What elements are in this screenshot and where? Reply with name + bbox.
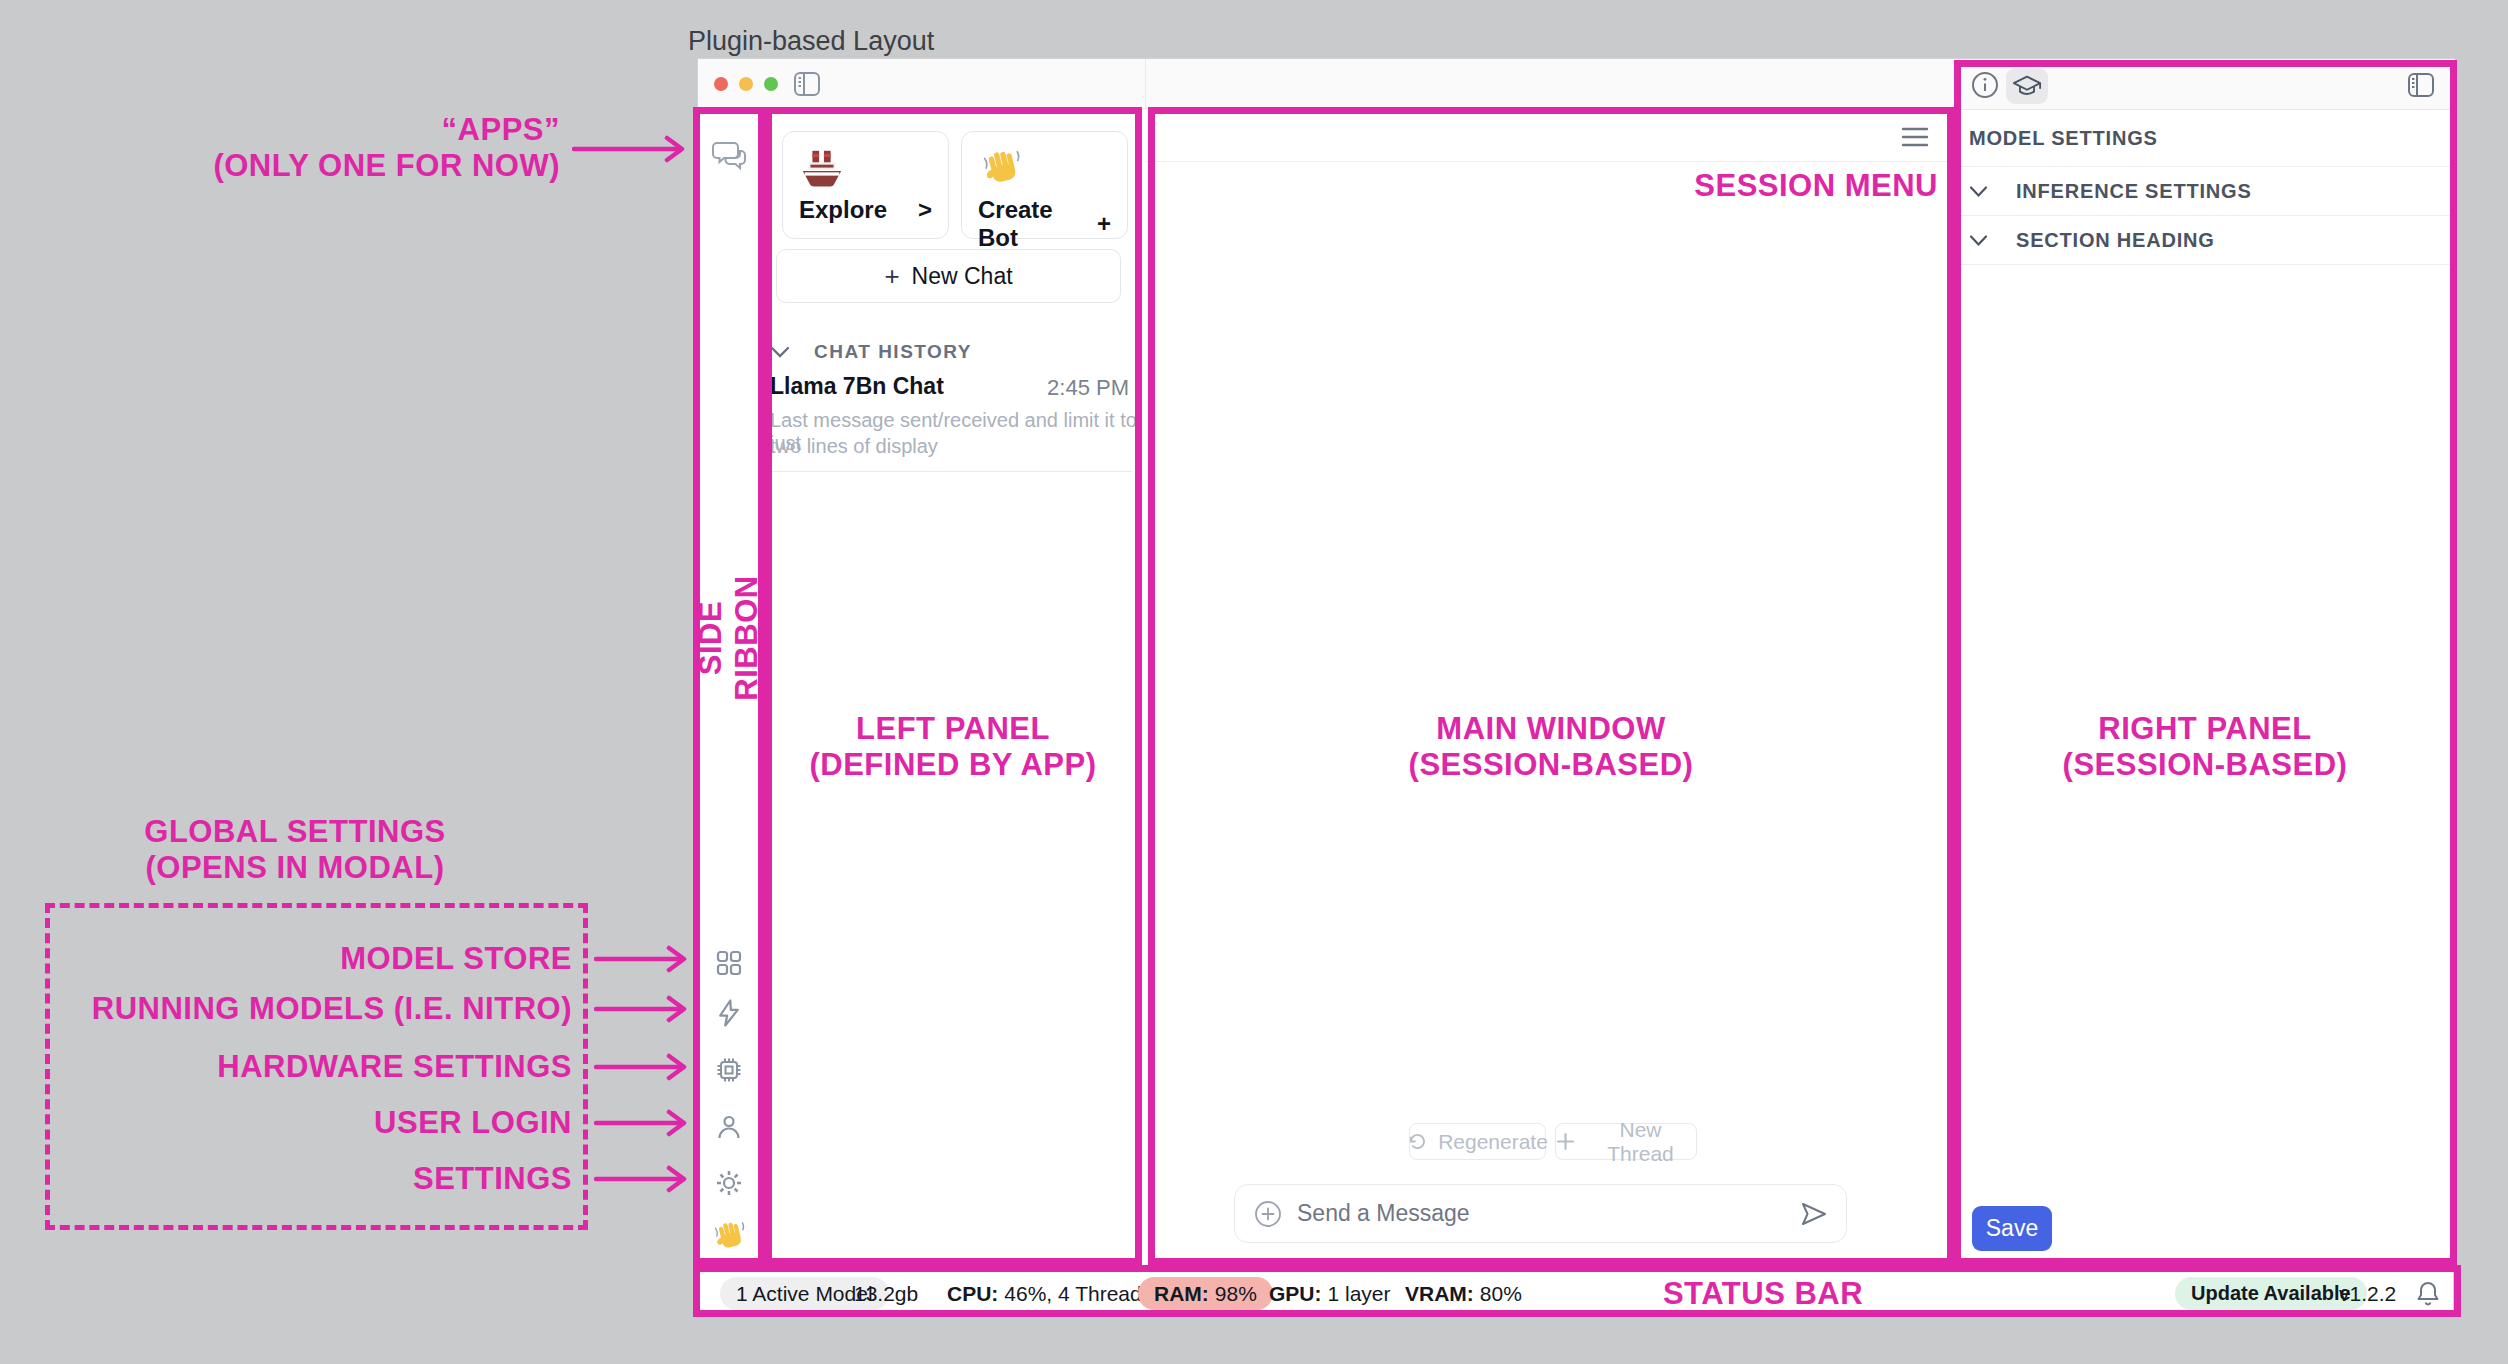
update-available-badge[interactable]: Update Available xyxy=(2175,1277,2367,1310)
regenerate-label: Regenerate xyxy=(1438,1130,1548,1154)
page-title: Plugin-based Layout xyxy=(688,26,934,57)
chevron-right-icon: > xyxy=(918,196,932,224)
gpu-usage: GPU: 1 layer xyxy=(1269,1277,1391,1310)
chat-history-item[interactable]: Llama 7Bn Chat 2:45 PM Last message sent… xyxy=(768,373,1137,473)
side-ribbon-annotation-label: SIDE RIBBON xyxy=(693,558,765,718)
chat-item-title: Llama 7Bn Chat xyxy=(770,373,944,400)
zoom-window-button[interactable] xyxy=(764,77,778,91)
apps-annotation-label: “APPS” (ONLY ONE FOR NOW) xyxy=(160,112,560,184)
wave-emoji[interactable] xyxy=(709,1217,749,1257)
chat-item-preview-line2: two lines of display xyxy=(770,435,938,458)
new-chat-button[interactable]: + New Chat xyxy=(776,249,1121,303)
annotated-mockup-canvas: Plugin-based Layout xyxy=(0,0,2508,1364)
section-heading-section[interactable]: SECTION HEADING xyxy=(1955,216,2455,265)
model-settings-title: MODEL SETTINGS xyxy=(1969,127,2158,150)
ram-usage-badge: RAM: 98% xyxy=(1138,1277,1273,1310)
create-bot-card-label: Create Bot xyxy=(978,196,1097,252)
message-input[interactable] xyxy=(1297,1200,1786,1227)
section-heading-label: SECTION HEADING xyxy=(2016,229,2215,252)
chevron-down-icon xyxy=(1969,234,1988,247)
main-window-annotation-label: MAIN WINDOW (SESSION-BASED) xyxy=(1351,711,1751,783)
ship-emoji xyxy=(799,146,932,196)
running-models-annotation-arrow xyxy=(594,995,694,1027)
app-window: Explore > xyxy=(697,58,2454,1316)
assistant-tab-active[interactable] xyxy=(2006,68,2048,104)
user-login-person-icon[interactable] xyxy=(709,1107,749,1147)
cpu-usage: CPU: 46%, 4 Threads xyxy=(947,1277,1152,1310)
titlebar-divider xyxy=(1145,59,1146,109)
cpu-value: 46%, 4 Threads xyxy=(1004,1282,1152,1306)
main-window: Regenerate New Thread xyxy=(1145,109,1957,1269)
divider xyxy=(772,471,1132,472)
app-version: v1.2.2 xyxy=(2339,1277,2396,1310)
cpu-label: CPU: xyxy=(947,1282,998,1306)
notifications-bell-icon[interactable] xyxy=(2414,1279,2442,1314)
vram-usage: VRAM: 80% xyxy=(1405,1277,1522,1310)
send-icon[interactable] xyxy=(1800,1201,1828,1227)
minimize-window-button[interactable] xyxy=(739,77,753,91)
chevron-down-icon xyxy=(770,345,790,359)
info-icon[interactable] xyxy=(1970,70,2000,104)
wave-emoji xyxy=(978,146,1111,196)
apps-annotation-arrow xyxy=(572,135,692,167)
gpu-value: 1 layer xyxy=(1328,1282,1391,1306)
chevron-down-icon xyxy=(1969,185,1988,198)
plus-icon: + xyxy=(1097,210,1111,238)
user-login-annotation-label: USER LOGIN xyxy=(80,1105,572,1141)
inference-settings-label: INFERENCE SETTINGS xyxy=(2016,180,2252,203)
chat-item-timestamp: 2:45 PM xyxy=(1047,375,1129,401)
explore-card-label: Explore xyxy=(799,196,887,224)
hardware-settings-annotation-arrow xyxy=(594,1053,694,1085)
memory-usage-value: 13.2gb xyxy=(854,1277,918,1310)
model-store-annotation-label: MODEL STORE xyxy=(80,941,572,977)
hardware-chip-icon[interactable] xyxy=(709,1050,749,1090)
user-login-annotation-arrow xyxy=(594,1109,694,1141)
new-thread-label: New Thread xyxy=(1585,1118,1696,1166)
left-panel-annotation-label: LEFT PANEL (DEFINED BY APP) xyxy=(753,711,1153,783)
running-models-annotation-label: RUNNING MODELS (I.E. NITRO) xyxy=(80,991,572,1027)
gpu-label: GPU: xyxy=(1269,1282,1322,1306)
apps-chat-icon[interactable] xyxy=(709,135,749,175)
save-button[interactable]: Save xyxy=(1972,1206,2052,1251)
session-menu-hamburger-icon[interactable] xyxy=(1900,125,1930,153)
attach-plus-circle-icon[interactable] xyxy=(1253,1199,1283,1229)
new-thread-button[interactable]: New Thread xyxy=(1555,1123,1697,1160)
right-sidebar-toggle-icon[interactable] xyxy=(2404,68,2438,106)
model-store-annotation-arrow xyxy=(594,945,694,977)
global-settings-annotation-label: GLOBAL SETTINGS (OPENS IN MODAL) xyxy=(65,814,525,886)
create-bot-card[interactable]: Create Bot + xyxy=(961,131,1128,239)
status-bar-annotation-label: STATUS BAR xyxy=(1563,1276,1963,1312)
left-panel: Explore > xyxy=(760,109,1145,1269)
right-panel: MODEL SETTINGS INFERENCE SETTINGS SECTIO… xyxy=(1955,59,2455,1269)
close-window-button[interactable] xyxy=(714,77,728,91)
model-settings-header-row: MODEL SETTINGS xyxy=(1955,110,2455,167)
chat-history-header[interactable]: CHAT HISTORY xyxy=(770,335,1135,369)
vram-value: 80% xyxy=(1480,1282,1522,1306)
session-menu-annotation-label: SESSION MENU xyxy=(1538,168,1938,204)
settings-annotation-arrow xyxy=(594,1165,694,1197)
plus-icon xyxy=(1556,1132,1575,1151)
ram-label: RAM: xyxy=(1154,1282,1209,1306)
settings-annotation-label: SETTINGS xyxy=(80,1161,572,1197)
refresh-icon xyxy=(1407,1131,1428,1152)
inference-settings-section[interactable]: INFERENCE SETTINGS xyxy=(1955,167,2455,216)
settings-gear-icon[interactable] xyxy=(709,1163,749,1203)
regenerate-button[interactable]: Regenerate xyxy=(1409,1123,1546,1160)
left-sidebar-toggle-icon[interactable] xyxy=(790,67,824,105)
running-models-bolt-icon[interactable] xyxy=(709,993,749,1033)
right-panel-annotation-label: RIGHT PANEL (SESSION-BASED) xyxy=(2005,711,2405,783)
vram-label: VRAM: xyxy=(1405,1282,1474,1306)
new-chat-label: New Chat xyxy=(912,263,1013,290)
explore-card[interactable]: Explore > xyxy=(782,131,949,239)
hardware-settings-annotation-label: HARDWARE SETTINGS xyxy=(80,1049,572,1085)
chat-history-title: CHAT HISTORY xyxy=(814,341,972,363)
ram-value: 98% xyxy=(1215,1282,1257,1306)
right-panel-toolbar xyxy=(1955,59,2455,110)
graduation-cap-icon xyxy=(2012,73,2042,99)
message-composer xyxy=(1234,1184,1847,1243)
model-store-grid-icon[interactable] xyxy=(709,943,749,983)
plus-icon: + xyxy=(884,261,899,292)
main-header-divider xyxy=(1145,161,1957,162)
